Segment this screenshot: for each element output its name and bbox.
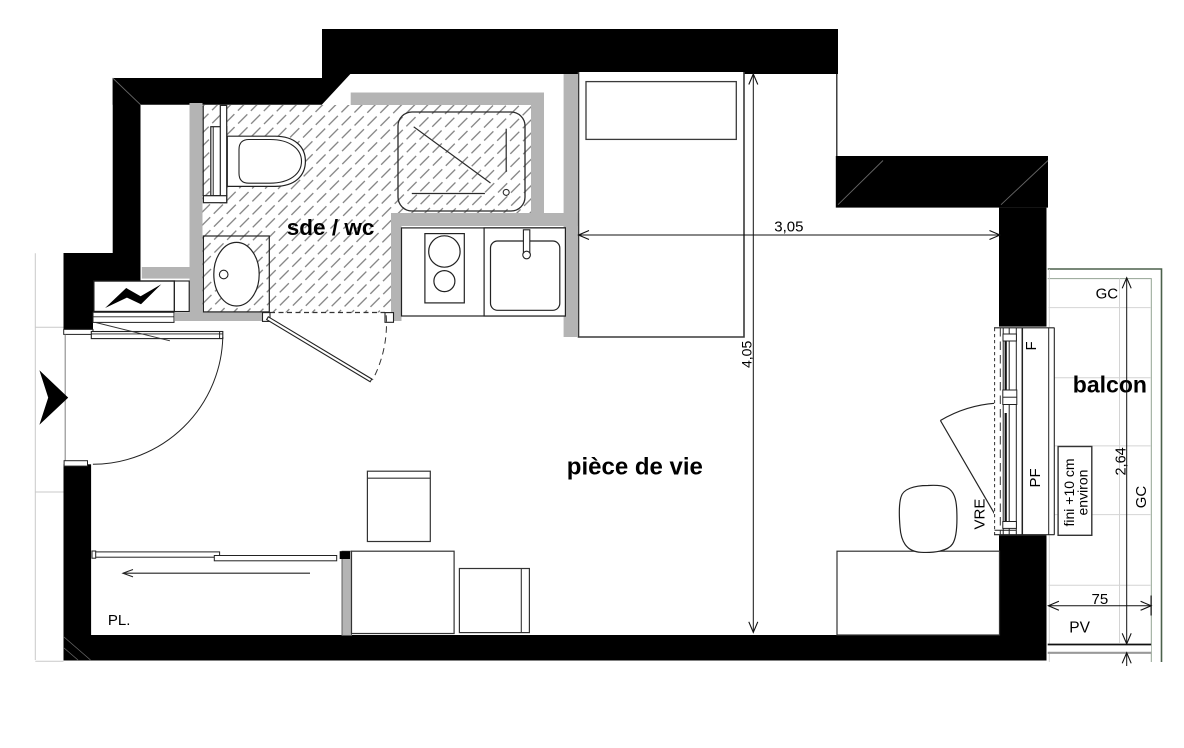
svg-text:GC: GC [1133, 486, 1150, 509]
svg-text:GC: GC [1096, 285, 1119, 302]
svg-text:PV: PV [1069, 619, 1090, 636]
svg-text:PF: PF [1027, 468, 1044, 487]
svg-text:environ: environ [1074, 470, 1090, 516]
svg-text:balcon: balcon [1073, 371, 1147, 397]
svg-text:VRE: VRE [972, 499, 989, 530]
svg-text:2,64: 2,64 [1114, 447, 1130, 475]
svg-text:pièce de vie: pièce de vie [567, 453, 703, 480]
svg-text:sde / wc: sde / wc [287, 215, 375, 240]
svg-text:3,05: 3,05 [774, 219, 803, 236]
svg-text:F: F [1023, 341, 1040, 350]
svg-text:PL.: PL. [108, 612, 131, 629]
svg-text:4,05: 4,05 [738, 341, 754, 368]
svg-text:75: 75 [1092, 591, 1109, 608]
